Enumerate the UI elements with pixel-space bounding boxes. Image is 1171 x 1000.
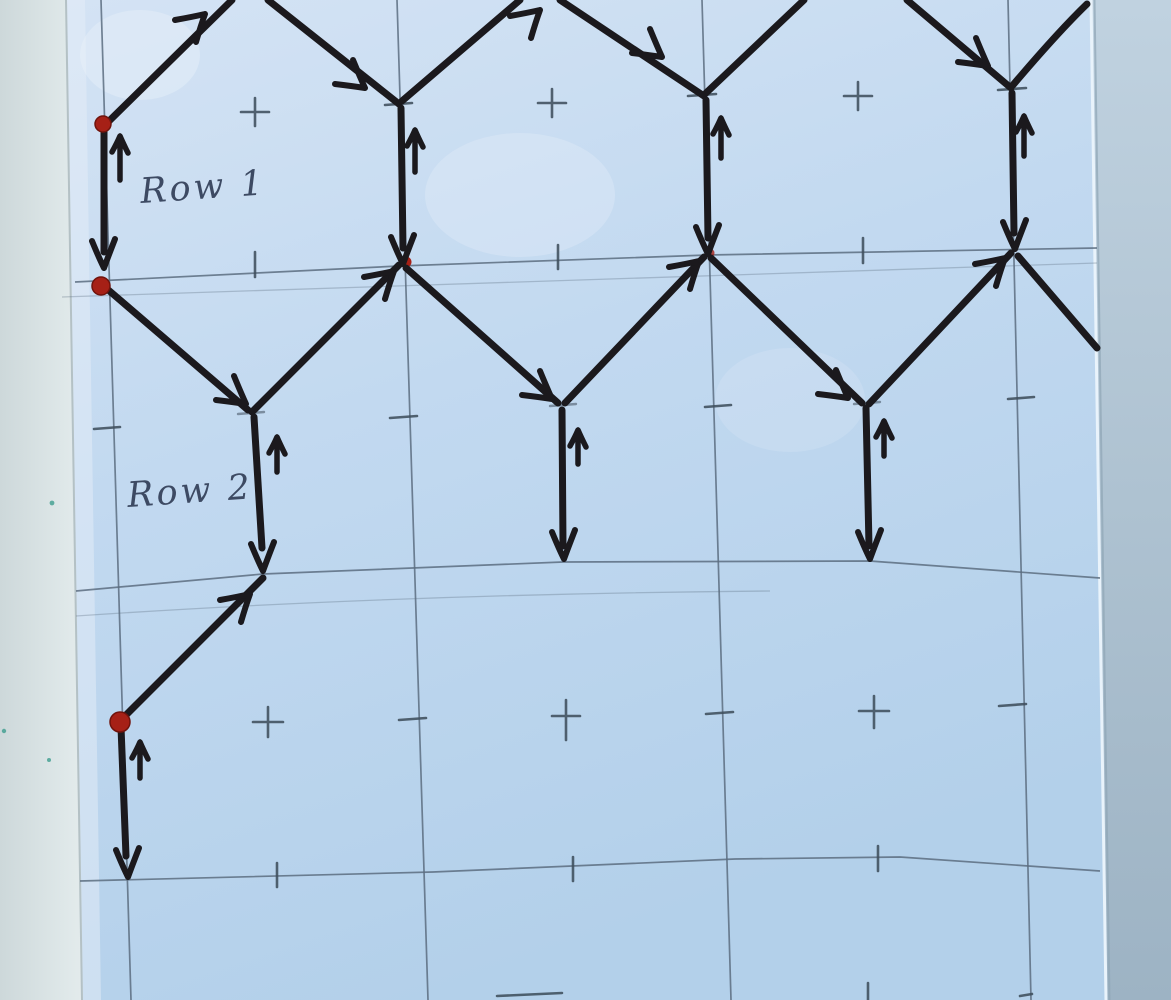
red-dot-3 xyxy=(110,712,130,732)
red-dot-2 xyxy=(92,277,110,295)
drop-row2-2 xyxy=(562,410,563,546)
drop-row1-4 xyxy=(1012,93,1014,233)
drop-row3-1 xyxy=(121,727,126,856)
drop-row1-2 xyxy=(401,108,403,248)
drop-row1-3 xyxy=(706,100,708,238)
photo-canvas: Row 1 Row 2 xyxy=(0,0,1171,1000)
paper-sheen xyxy=(425,133,615,257)
red-dot-1 xyxy=(95,116,111,132)
drop-row2-3 xyxy=(866,408,869,546)
